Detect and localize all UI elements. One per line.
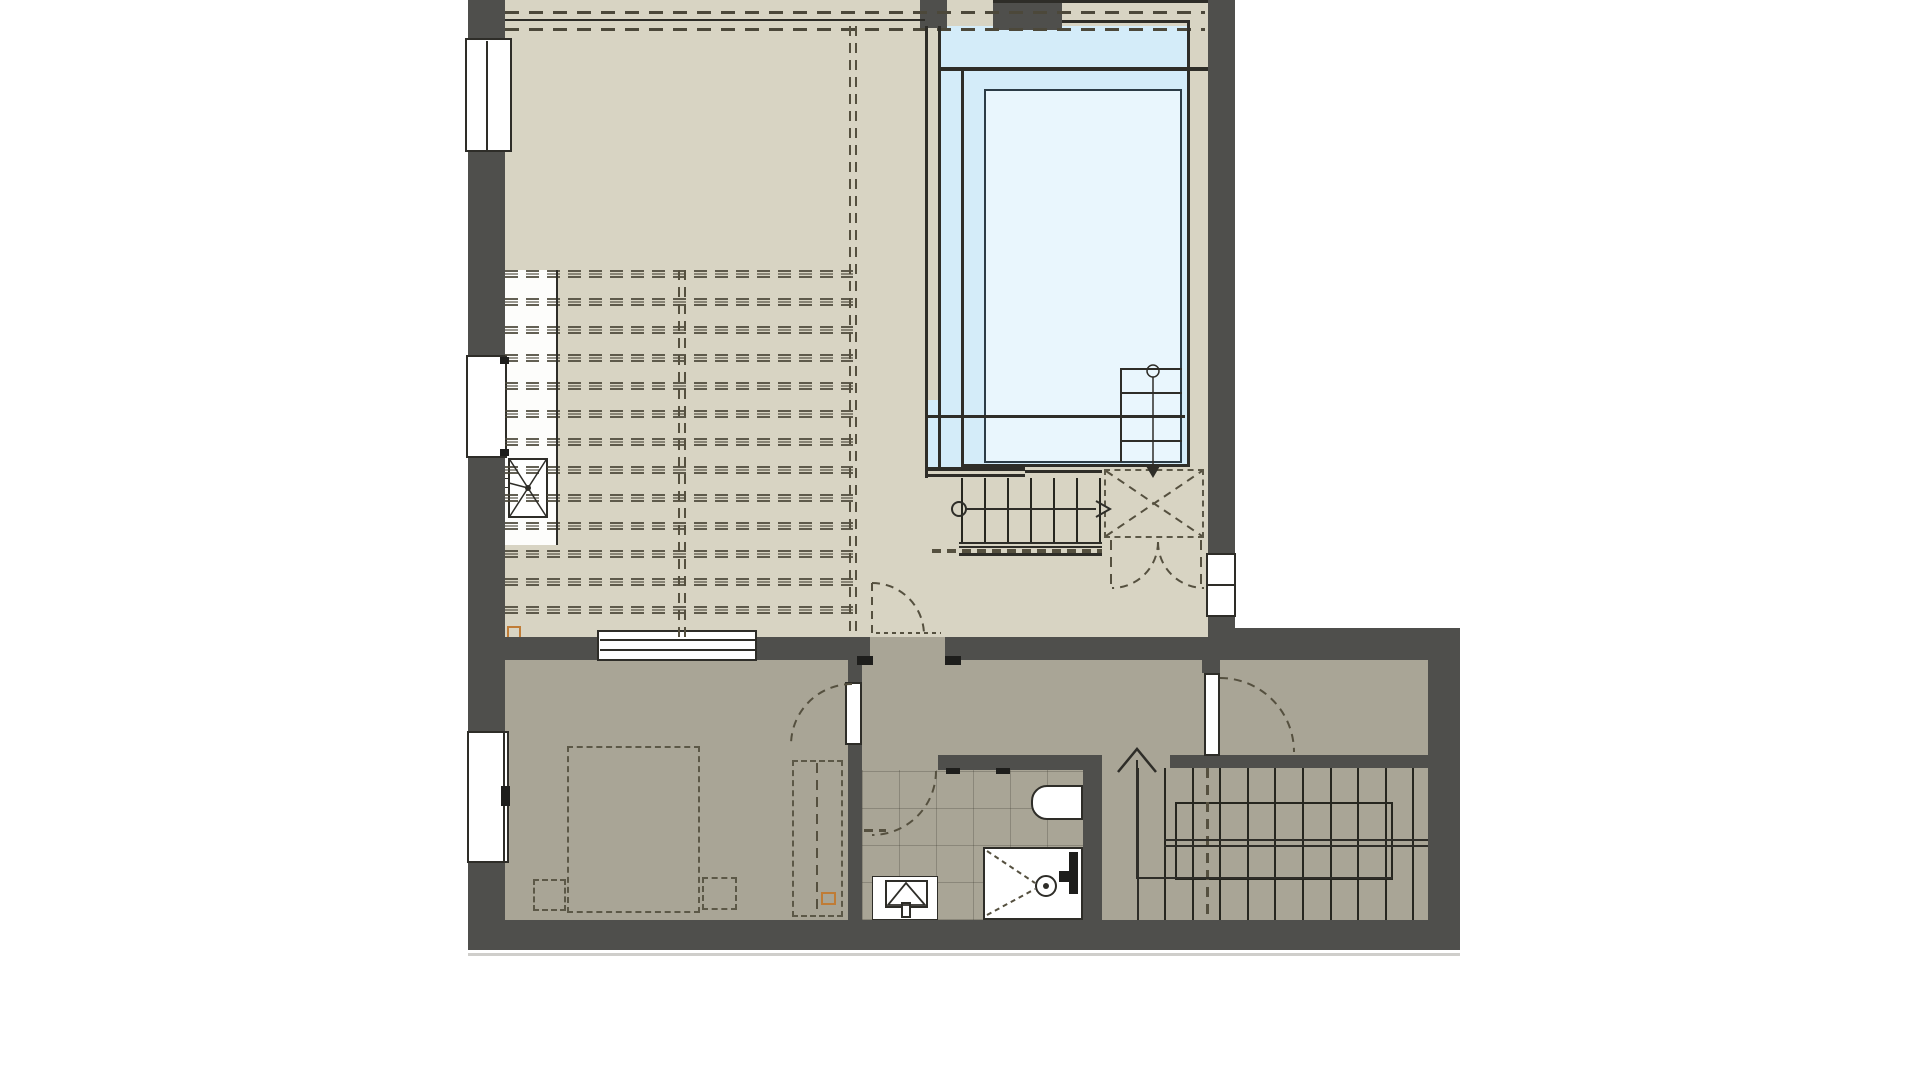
plan-line [556, 270, 558, 545]
marker-bedroom [821, 892, 836, 905]
plan-line [1120, 368, 1122, 462]
stair-tread [984, 478, 986, 542]
plan-line [959, 542, 1102, 544]
stair-tread [1302, 768, 1304, 920]
right-outer-wall [1428, 628, 1460, 950]
plan-line [925, 415, 1185, 418]
window-upper-left [465, 38, 512, 152]
window-mid-left [466, 355, 507, 458]
stair-tread [1330, 768, 1332, 920]
plan-line [925, 26, 928, 478]
sink-tap [901, 902, 911, 918]
stair-tread [1385, 768, 1387, 920]
mid-wall-right [945, 637, 1235, 660]
bath-stair-wall [1083, 755, 1102, 920]
nightstand-left [533, 879, 566, 911]
plan-line [857, 656, 873, 665]
plan-line [925, 474, 1025, 477]
top-stub-pool [993, 0, 1062, 30]
bottom-outer-wall [468, 920, 1460, 950]
bathtub [1031, 785, 1083, 820]
stair-tread [1247, 768, 1249, 920]
plan-line [501, 786, 510, 806]
plan-line [945, 656, 961, 665]
stair-tread [1076, 478, 1078, 542]
plan-line [1059, 871, 1069, 882]
top-stub-divider [920, 0, 947, 28]
dashed-guide-line [864, 829, 886, 832]
shower-tray [983, 847, 1083, 920]
stair-tread [1274, 768, 1276, 920]
stair-tread [1053, 478, 1055, 542]
plan-line [1120, 368, 1182, 370]
bed-outline [567, 746, 700, 913]
plan-line [959, 553, 1102, 556]
plan-line [1025, 470, 1102, 473]
plan-line [1164, 839, 1428, 841]
stair-tread [1192, 768, 1194, 920]
plan-line [941, 67, 1208, 71]
top-wall-right-section [1233, 628, 1460, 660]
stair-door-stub [1202, 660, 1220, 673]
pool-basin [984, 89, 1182, 463]
top-dash-row [505, 11, 1205, 14]
plan-line [925, 467, 1025, 471]
stair-tread [1030, 478, 1032, 542]
plan-line [1120, 392, 1182, 394]
dashed-guide-line [816, 763, 818, 913]
dashed-guide-line [1200, 540, 1202, 590]
stair-tread [1164, 768, 1166, 920]
door-right-exterior-mid [1208, 584, 1234, 586]
plan-line [600, 649, 755, 651]
plan-line [1062, 20, 1190, 23]
landing-x-box [1104, 469, 1204, 538]
dashed-guide-line [1110, 540, 1112, 590]
plan-line [1164, 845, 1428, 847]
dashed-guide-line [855, 26, 857, 637]
plan-line [505, 19, 925, 21]
stair-tread [1357, 768, 1359, 920]
plan-line [1120, 440, 1182, 442]
stair-tread [961, 478, 963, 542]
stair-tread [1412, 768, 1414, 920]
dashed-guide-line [849, 26, 851, 637]
nightstand-right [702, 877, 737, 910]
plan-line [486, 41, 488, 150]
dashed-guide-line [1206, 768, 1209, 920]
stair-door-leaf [1204, 673, 1220, 756]
plan-line [959, 546, 1102, 548]
window-interior-band [597, 630, 757, 661]
plan-line [1187, 20, 1190, 467]
plan-line [500, 357, 509, 364]
dashed-guide-line [684, 270, 686, 637]
stair-tread [1099, 478, 1101, 542]
glazing-panel [928, 400, 938, 467]
plan-line [1137, 768, 1139, 920]
stair-tread [1007, 478, 1009, 542]
plan-line [600, 639, 755, 641]
plan-line [961, 67, 964, 467]
bedroom-door-leaf [845, 682, 862, 745]
plan-line [993, 0, 1208, 3]
plan-line [938, 26, 941, 467]
floor-plan [0, 0, 1920, 1080]
plan-line [996, 768, 1010, 774]
plan-line [500, 449, 509, 456]
plan-line [1069, 852, 1078, 894]
stair-tread [1219, 768, 1221, 920]
plan-line [946, 768, 960, 774]
dashed-guide-line [678, 270, 680, 637]
stair-top-wall [1170, 755, 1428, 768]
ground-shadow-line [468, 953, 1460, 956]
